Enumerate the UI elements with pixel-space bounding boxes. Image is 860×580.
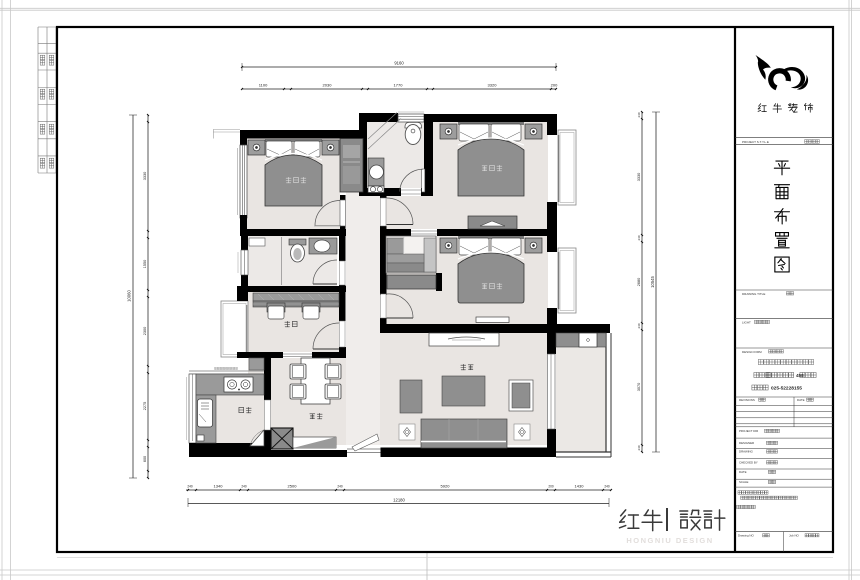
svg-text:200: 200 (551, 83, 558, 88)
svg-text:10545: 10545 (650, 276, 655, 288)
svg-text:CHECKED BY: CHECKED BY (739, 461, 758, 465)
svg-text:1430: 1430 (575, 484, 585, 489)
svg-text:1770: 1770 (394, 83, 404, 88)
svg-text:1340: 1340 (214, 484, 224, 489)
svg-text:Drawing NO: Drawing NO (738, 534, 754, 538)
svg-text:Job NO: Job NO (789, 534, 800, 538)
svg-text:5920: 5920 (441, 484, 451, 489)
svg-text:3330: 3330 (143, 172, 147, 180)
svg-text:240: 240 (241, 485, 247, 489)
svg-text:2500: 2500 (288, 484, 298, 489)
svg-text:3070: 3070 (637, 383, 641, 391)
svg-text:600: 600 (143, 456, 147, 462)
svg-text:9160: 9160 (394, 61, 404, 66)
svg-text:DESIGN FIRM: DESIGN FIRM (742, 350, 762, 354)
svg-text:240: 240 (187, 485, 193, 489)
svg-text:DATE: DATE (739, 470, 747, 474)
svg-text:025-52228155: 025-52228155 (771, 386, 802, 392)
svg-text:1550: 1550 (143, 260, 147, 268)
svg-text:SCALE: SCALE (739, 480, 749, 484)
svg-text:240: 240 (637, 445, 641, 450)
svg-text:1100: 1100 (259, 83, 268, 88)
svg-text:HONGNIU DESIGN: HONGNIU DESIGN (626, 536, 713, 545)
svg-text:3330: 3330 (637, 173, 641, 181)
svg-text:DRAWING: DRAWING (739, 450, 754, 454)
svg-text:200: 200 (548, 485, 554, 489)
svg-text:10060: 10060 (127, 290, 132, 302)
svg-text:240: 240 (637, 235, 641, 240)
svg-text:12180: 12180 (393, 498, 405, 503)
svg-text:240: 240 (637, 323, 641, 328)
svg-text:DRAWING TITLE: DRAWING TITLE (742, 292, 765, 296)
svg-text:DATE: DATE (797, 398, 805, 402)
svg-text:REVISIONS: REVISIONS (739, 398, 755, 402)
svg-text:DESIGNER: DESIGNER (739, 441, 754, 445)
svg-text:240: 240 (604, 485, 610, 489)
svg-text:240: 240 (337, 485, 343, 489)
svg-text:2030: 2030 (323, 83, 333, 88)
svg-text:3320: 3320 (488, 83, 498, 88)
svg-text:2275: 2275 (143, 402, 147, 410)
svg-text:240: 240 (637, 112, 641, 117)
svg-text:PROJECT DIR: PROJECT DIR (739, 429, 758, 433)
svg-text:PROJECT S.T.Y.L.E: PROJECT S.T.Y.L.E (742, 140, 769, 144)
svg-text:2300: 2300 (143, 327, 147, 335)
svg-text:LIGHT: LIGHT (742, 321, 751, 325)
svg-text:2680: 2680 (637, 278, 641, 286)
